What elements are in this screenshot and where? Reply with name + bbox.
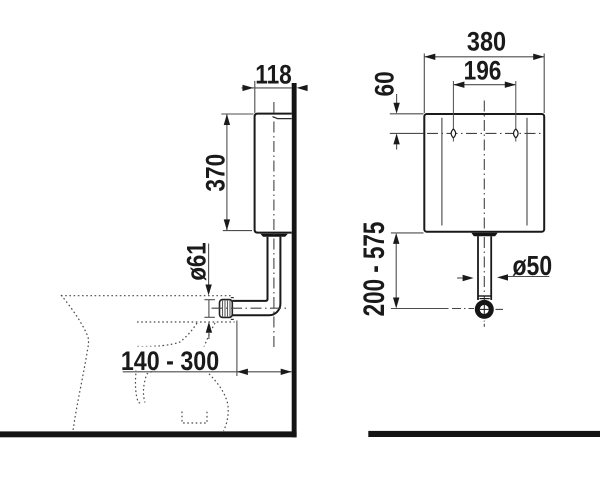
svg-text:196: 196 — [464, 56, 502, 86]
svg-text:118: 118 — [255, 60, 292, 90]
svg-text:60: 60 — [369, 71, 399, 96]
svg-text:370: 370 — [200, 154, 230, 192]
svg-text:380: 380 — [467, 27, 506, 57]
svg-text:200 - 575: 200 - 575 — [357, 222, 391, 317]
svg-text:ø61: ø61 — [183, 242, 212, 280]
